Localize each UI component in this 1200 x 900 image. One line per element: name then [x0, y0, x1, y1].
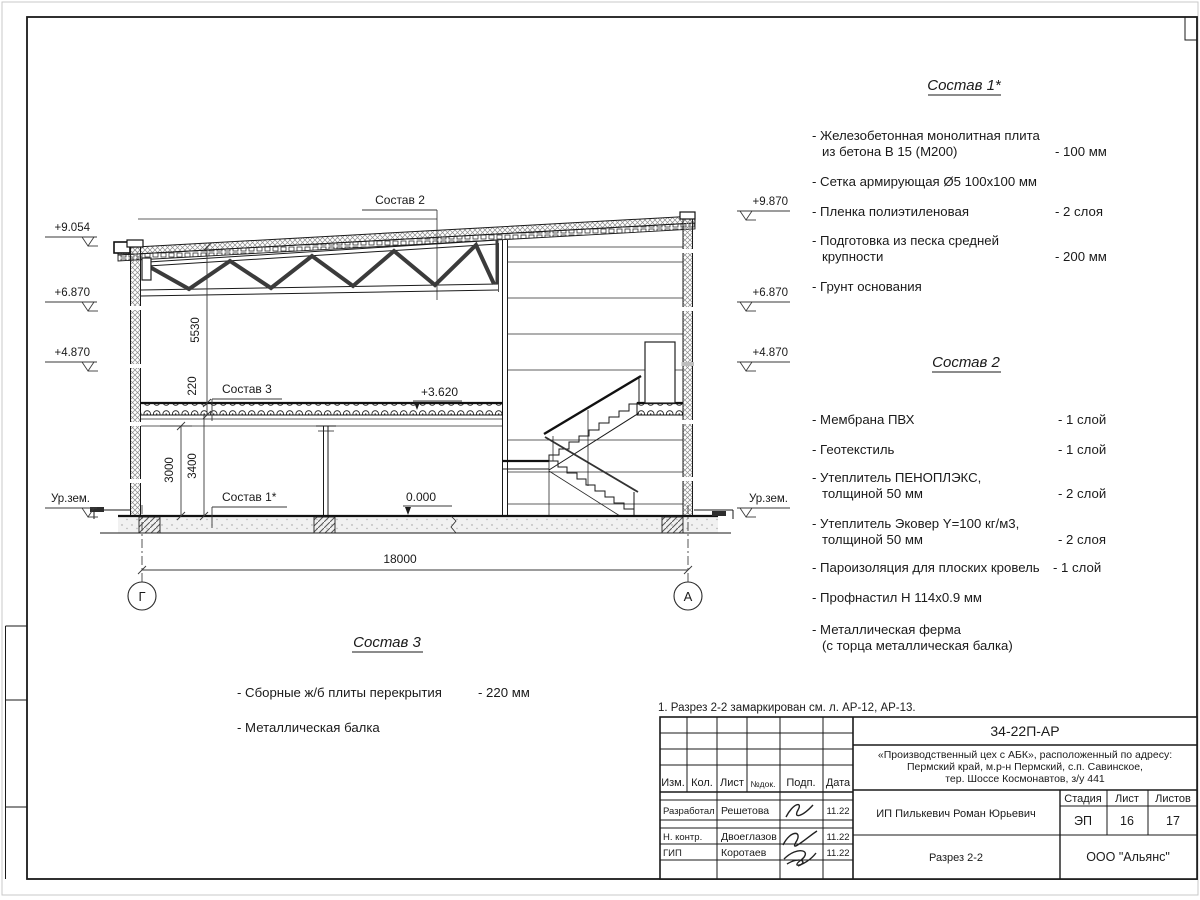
svg-text:+4.870: +4.870: [55, 347, 91, 359]
title-block: Изм. Кол. Лист №док. Подп. Дата Разработ…: [660, 717, 1197, 879]
svg-text:+6.870: +6.870: [753, 287, 789, 299]
sostav1-label: Состав 1*: [222, 490, 277, 504]
tb-row1-date: 11.22: [826, 806, 849, 817]
c1-item1-line2: из бетона В 15 (М200): [822, 144, 957, 159]
dim-220: 220: [187, 376, 199, 395]
sostav2-label: Состав 2: [375, 193, 425, 207]
tb-row2-date: 11.22: [826, 832, 849, 843]
sheet-note: 1. Разрез 2-2 замаркирован см. л. АР-12,…: [658, 702, 916, 714]
tb-project-line3: тер. Шоссе Космонавтов, з/у 441: [945, 773, 1105, 785]
elev-left-4870: +4.870: [45, 347, 98, 371]
filing-boxes: [6, 626, 28, 879]
tb-row2-role: Н. контр.: [663, 832, 702, 843]
tb-header-data: Дата: [826, 777, 851, 789]
c1-item2-line1: - Сетка армирующая Ø5 100х100 мм: [812, 174, 1037, 189]
dim-3000: 3000: [164, 457, 176, 483]
tb-header-stage: Стадия: [1064, 793, 1102, 805]
c3-item1-line1: - Сборные ж/б плиты перекрытия: [237, 685, 442, 700]
svg-text:+9.870: +9.870: [753, 196, 789, 208]
tb-project-line2: Пермский край, м.р-н Пермский, с.п. Сави…: [907, 761, 1143, 773]
tb-row3-role: ГИП: [663, 848, 682, 859]
tb-row3-date: 11.22: [826, 848, 849, 859]
vertical-dimensions: 5530 220 3400 3000: [160, 243, 211, 520]
elev-right-6870: +6.870: [737, 287, 790, 311]
c1-item4-value: - 200 мм: [1055, 249, 1107, 264]
drawing-sheet: Состав 2 Состав 3 Состав 1* +3.620 0.000…: [0, 0, 1200, 900]
tb-row1-name: Решетова: [721, 805, 769, 817]
svg-text:Ур.зем.: Ур.зем.: [749, 493, 788, 505]
right-wall: [680, 212, 695, 516]
tb-project-line1: «Производственный цех с АБК», расположен…: [878, 749, 1172, 761]
c2-item1-line1: - Мембрана ПВХ: [812, 412, 915, 427]
dim-18000: 18000: [383, 552, 417, 566]
elevation-marks-right: +9.870 +6.870 +4.870 Ур.зем.: [737, 196, 790, 517]
tb-sheets-value: 17: [1166, 814, 1180, 828]
c2-item3-value: - 2 слой: [1058, 486, 1106, 501]
composition-3-block: Состав 3 - Сборные ж/б плиты перекрытия …: [237, 634, 530, 735]
tb-row3-name: Коротаев: [721, 847, 767, 859]
tb-header-ndok: №док.: [751, 779, 776, 789]
composition-1-block: Состав 1* - Железобетонная монолитная пл…: [812, 77, 1107, 294]
svg-text:+9.054: +9.054: [55, 222, 91, 234]
svg-text:Ур.зем.: Ур.зем.: [51, 493, 90, 505]
tb-row1-role: Разработал: [663, 806, 715, 817]
elevation-marks-left: +9.054 +6.870 +4.870 Ур.зем.: [45, 222, 98, 517]
c2-item3-line2: толщиной 50 мм: [822, 486, 923, 501]
staircase: [503, 342, 676, 516]
tb-sheet-title: Разрез 2-2: [929, 852, 983, 864]
tb-header-listov: Листов: [1155, 793, 1191, 805]
tb-row2-name: Двоеглазов: [721, 831, 777, 843]
composition-1-title: Состав 1*: [927, 77, 1002, 94]
axis-g: Г: [138, 589, 145, 604]
elev-right-ground: Ур.зем.: [737, 493, 790, 517]
ground-floor: [90, 507, 733, 533]
tb-doc-number: 34-22П-АР: [990, 723, 1059, 739]
section-drawing: Состав 2 Состав 3 Состав 1* +3.620 0.000…: [45, 193, 790, 610]
interior-column: [316, 426, 336, 516]
c2-item7-line1: - Металлическая ферма: [812, 622, 962, 637]
left-wall: [127, 240, 143, 516]
dim-3400: 3400: [187, 453, 199, 479]
tb-company: ООО "Альянс": [1086, 850, 1170, 864]
svg-text:+6.870: +6.870: [55, 287, 91, 299]
c2-item4-line2: толщиной 50 мм: [822, 532, 923, 547]
c2-item4-value: - 2 слоя: [1058, 532, 1106, 547]
c2-item2-value: - 1 слой: [1058, 442, 1106, 457]
c1-item1-line1: - Железобетонная монолитная плита: [812, 128, 1041, 143]
tb-client: ИП Пилькевич Роман Юрьевич: [876, 808, 1035, 820]
elev-left-9054: +9.054: [45, 222, 98, 246]
c1-item5-line1: - Грунт основания: [812, 279, 922, 294]
composition-2-block: Состав 2 - Мембрана ПВХ - 1 слой - Геоте…: [812, 354, 1106, 653]
c1-item4-line2: крупности: [822, 249, 883, 264]
dim-5530: 5530: [190, 317, 202, 343]
c1-item1-value: - 100 мм: [1055, 144, 1107, 159]
c2-item5-line1: - Пароизоляция для плоских кровель: [812, 560, 1040, 575]
c2-item1-value: - 1 слой: [1058, 412, 1106, 427]
roof: [114, 216, 695, 261]
c1-item4-line1: - Подготовка из песка средней: [812, 233, 999, 248]
c3-item2-line1: - Металлическая балка: [237, 720, 380, 735]
tb-sheet-value: 16: [1120, 814, 1134, 828]
tb-header-list2: Лист: [1115, 793, 1139, 805]
axis-a: А: [684, 589, 693, 604]
c2-item7-line2: (с торца металлическая балка): [822, 638, 1013, 653]
svg-text:+4.870: +4.870: [753, 347, 789, 359]
tb-header-izm: Изм.: [661, 777, 685, 789]
elev-right-4870: +4.870: [737, 347, 790, 371]
c1-item3-line1: - Пленка полиэтиленовая: [812, 204, 969, 219]
interior-wall: [499, 240, 508, 516]
c3-item1-value: - 220 мм: [478, 685, 530, 700]
sheet-canvas: Состав 2 Состав 3 Состав 1* +3.620 0.000…: [0, 0, 1200, 900]
elev-3620-label: +3.620: [421, 385, 458, 399]
c2-item4-line1: - Утеплитель Эковер Y=100 кг/м3,: [812, 516, 1019, 531]
c2-item2-line1: - Геотекстиль: [812, 442, 895, 457]
sostav3-label: Состав 3: [222, 382, 272, 396]
composition-3-title: Состав 3: [353, 634, 421, 651]
tb-header-list: Лист: [720, 777, 744, 789]
c2-item5-value: - 1 слой: [1053, 560, 1101, 575]
tb-header-kol: Кол.: [691, 777, 713, 789]
elev-left-6870: +6.870: [45, 287, 98, 311]
elev-left-ground: Ур.зем.: [45, 493, 98, 517]
c1-item3-value: - 2 слоя: [1055, 204, 1103, 219]
tb-stage-value: ЭП: [1074, 814, 1092, 828]
tb-header-podp: Подп.: [786, 777, 815, 789]
elev-right-9870: +9.870: [737, 196, 790, 220]
c2-item6-line1: - Профнастил Н 114х0.9 мм: [812, 590, 982, 605]
c2-item3-line1: - Утеплитель ПЕНОПЛЭКС,: [812, 470, 981, 485]
elev-0000-label: 0.000: [406, 490, 436, 504]
composition-2-title: Состав 2: [932, 354, 1000, 371]
